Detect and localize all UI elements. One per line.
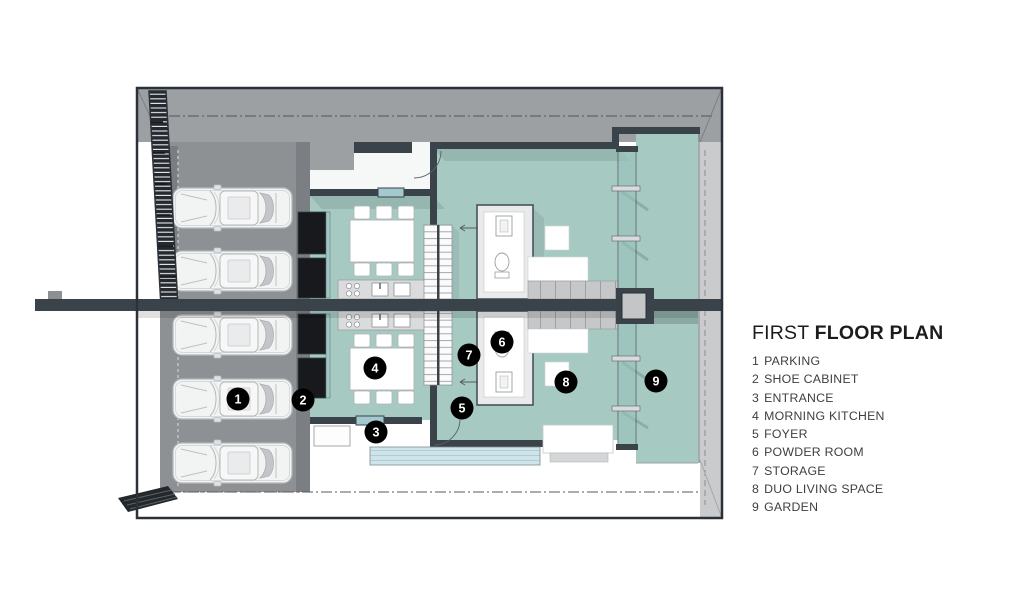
parked-car <box>173 440 292 486</box>
right-wall-band <box>700 142 722 518</box>
legend-item-number: 4 <box>752 409 759 423</box>
page: { "legend": { "title": { "regular": "FIR… <box>0 0 1024 613</box>
legend-item-number: 3 <box>752 391 759 405</box>
legend-item-label: STORAGE <box>764 464 826 478</box>
room-marker-number: 8 <box>563 376 570 390</box>
powder-room-bottom <box>477 311 533 405</box>
legend-item-label: MORNING KITCHEN <box>764 409 885 423</box>
room-marker-entrance: 3 <box>365 421 388 444</box>
parked-car <box>173 248 292 294</box>
legend-item-label: GARDEN <box>764 500 818 514</box>
staircase-bottom <box>424 311 452 385</box>
legend-item-powder-room: 6POWDER ROOM <box>752 443 992 461</box>
legend: FIRST FLOOR PLAN 1PARKING2SHOE CABINET3E… <box>752 322 992 517</box>
legend-item-number: 2 <box>752 372 759 386</box>
legend-item-label: POWDER ROOM <box>764 445 864 459</box>
legend-item-entrance: 3ENTRANCE <box>752 389 992 407</box>
dining-table-top <box>350 206 414 276</box>
room-marker-number: 4 <box>372 362 379 376</box>
legend-item-number: 6 <box>752 445 759 459</box>
floor-plan-svg: 123456789 <box>0 0 1024 613</box>
mullion-bar <box>612 236 640 241</box>
room-marker-foyer: 5 <box>451 397 474 420</box>
legend-item-number: 8 <box>752 482 759 496</box>
room-marker-number: 5 <box>459 402 466 416</box>
mullion-bar <box>612 186 640 191</box>
room-marker-duo-living-space: 8 <box>555 371 578 394</box>
terrace <box>543 425 613 453</box>
legend-item-label: PARKING <box>764 354 820 368</box>
room-marker-parking: 1 <box>227 388 250 411</box>
shoe-cabinet-box <box>298 314 326 354</box>
parked-car <box>173 185 292 231</box>
legend-item-garden: 9GARDEN <box>752 498 992 516</box>
parked-car <box>173 312 292 358</box>
floor-plan-figure: 123456789 FIRST FLOOR PLAN 1PARKING2SHOE… <box>0 0 1024 613</box>
glass-floor-strip <box>370 447 540 465</box>
legend-item-number: 5 <box>752 427 759 441</box>
staircase-top <box>424 225 452 299</box>
legend-item-foyer: 5FOYER <box>752 425 992 443</box>
mullion-bar <box>612 356 640 361</box>
legend-item-duo-living-space: 8DUO LIVING SPACE <box>752 480 992 498</box>
legend-title-regular: FIRST <box>752 322 809 344</box>
terrace-step <box>550 453 608 462</box>
room-marker-number: 3 <box>373 426 380 440</box>
legend-item-parking: 1PARKING <box>752 352 992 370</box>
room-marker-number: 1 <box>235 393 242 407</box>
room-marker-powder-room: 6 <box>491 331 514 354</box>
legend-item-number: 9 <box>752 500 759 514</box>
room-marker-number: 9 <box>653 375 660 389</box>
legend-title: FIRST FLOOR PLAN <box>752 322 992 344</box>
room-marker-number: 6 <box>499 336 506 350</box>
mullion-bar <box>612 406 640 411</box>
entrance-planter <box>314 426 350 446</box>
powder-room-top <box>477 205 533 299</box>
legend-list: 1PARKING2SHOE CABINET3ENTRANCE4MORNING K… <box>752 352 992 517</box>
legend-item-storage: 7STORAGE <box>752 462 992 480</box>
legend-item-number: 1 <box>752 354 759 368</box>
room-marker-garden: 9 <box>645 370 668 393</box>
legend-item-shoe-cabinet: 2SHOE CABINET <box>752 370 992 388</box>
room-marker-number: 2 <box>300 394 307 408</box>
shoe-cabinet-box <box>298 212 326 254</box>
kitchen-counter-top <box>338 280 433 299</box>
room-marker-shoe-cabinet: 2 <box>292 389 315 412</box>
room-marker-morning-kitchen: 4 <box>364 357 387 380</box>
legend-item-label: SHOE CABINET <box>764 372 859 386</box>
room-marker-storage: 7 <box>458 344 481 367</box>
room-marker-number: 7 <box>466 349 473 363</box>
legend-item-morning-kitchen: 4MORNING KITCHEN <box>752 407 992 425</box>
legend-title-bold: FLOOR PLAN <box>815 322 944 344</box>
legend-item-label: FOYER <box>764 427 808 441</box>
legend-item-number: 7 <box>752 464 759 478</box>
shoe-cabinet-box <box>298 258 326 298</box>
legend-item-label: DUO LIVING SPACE <box>764 482 883 496</box>
legend-item-label: ENTRANCE <box>764 391 834 405</box>
